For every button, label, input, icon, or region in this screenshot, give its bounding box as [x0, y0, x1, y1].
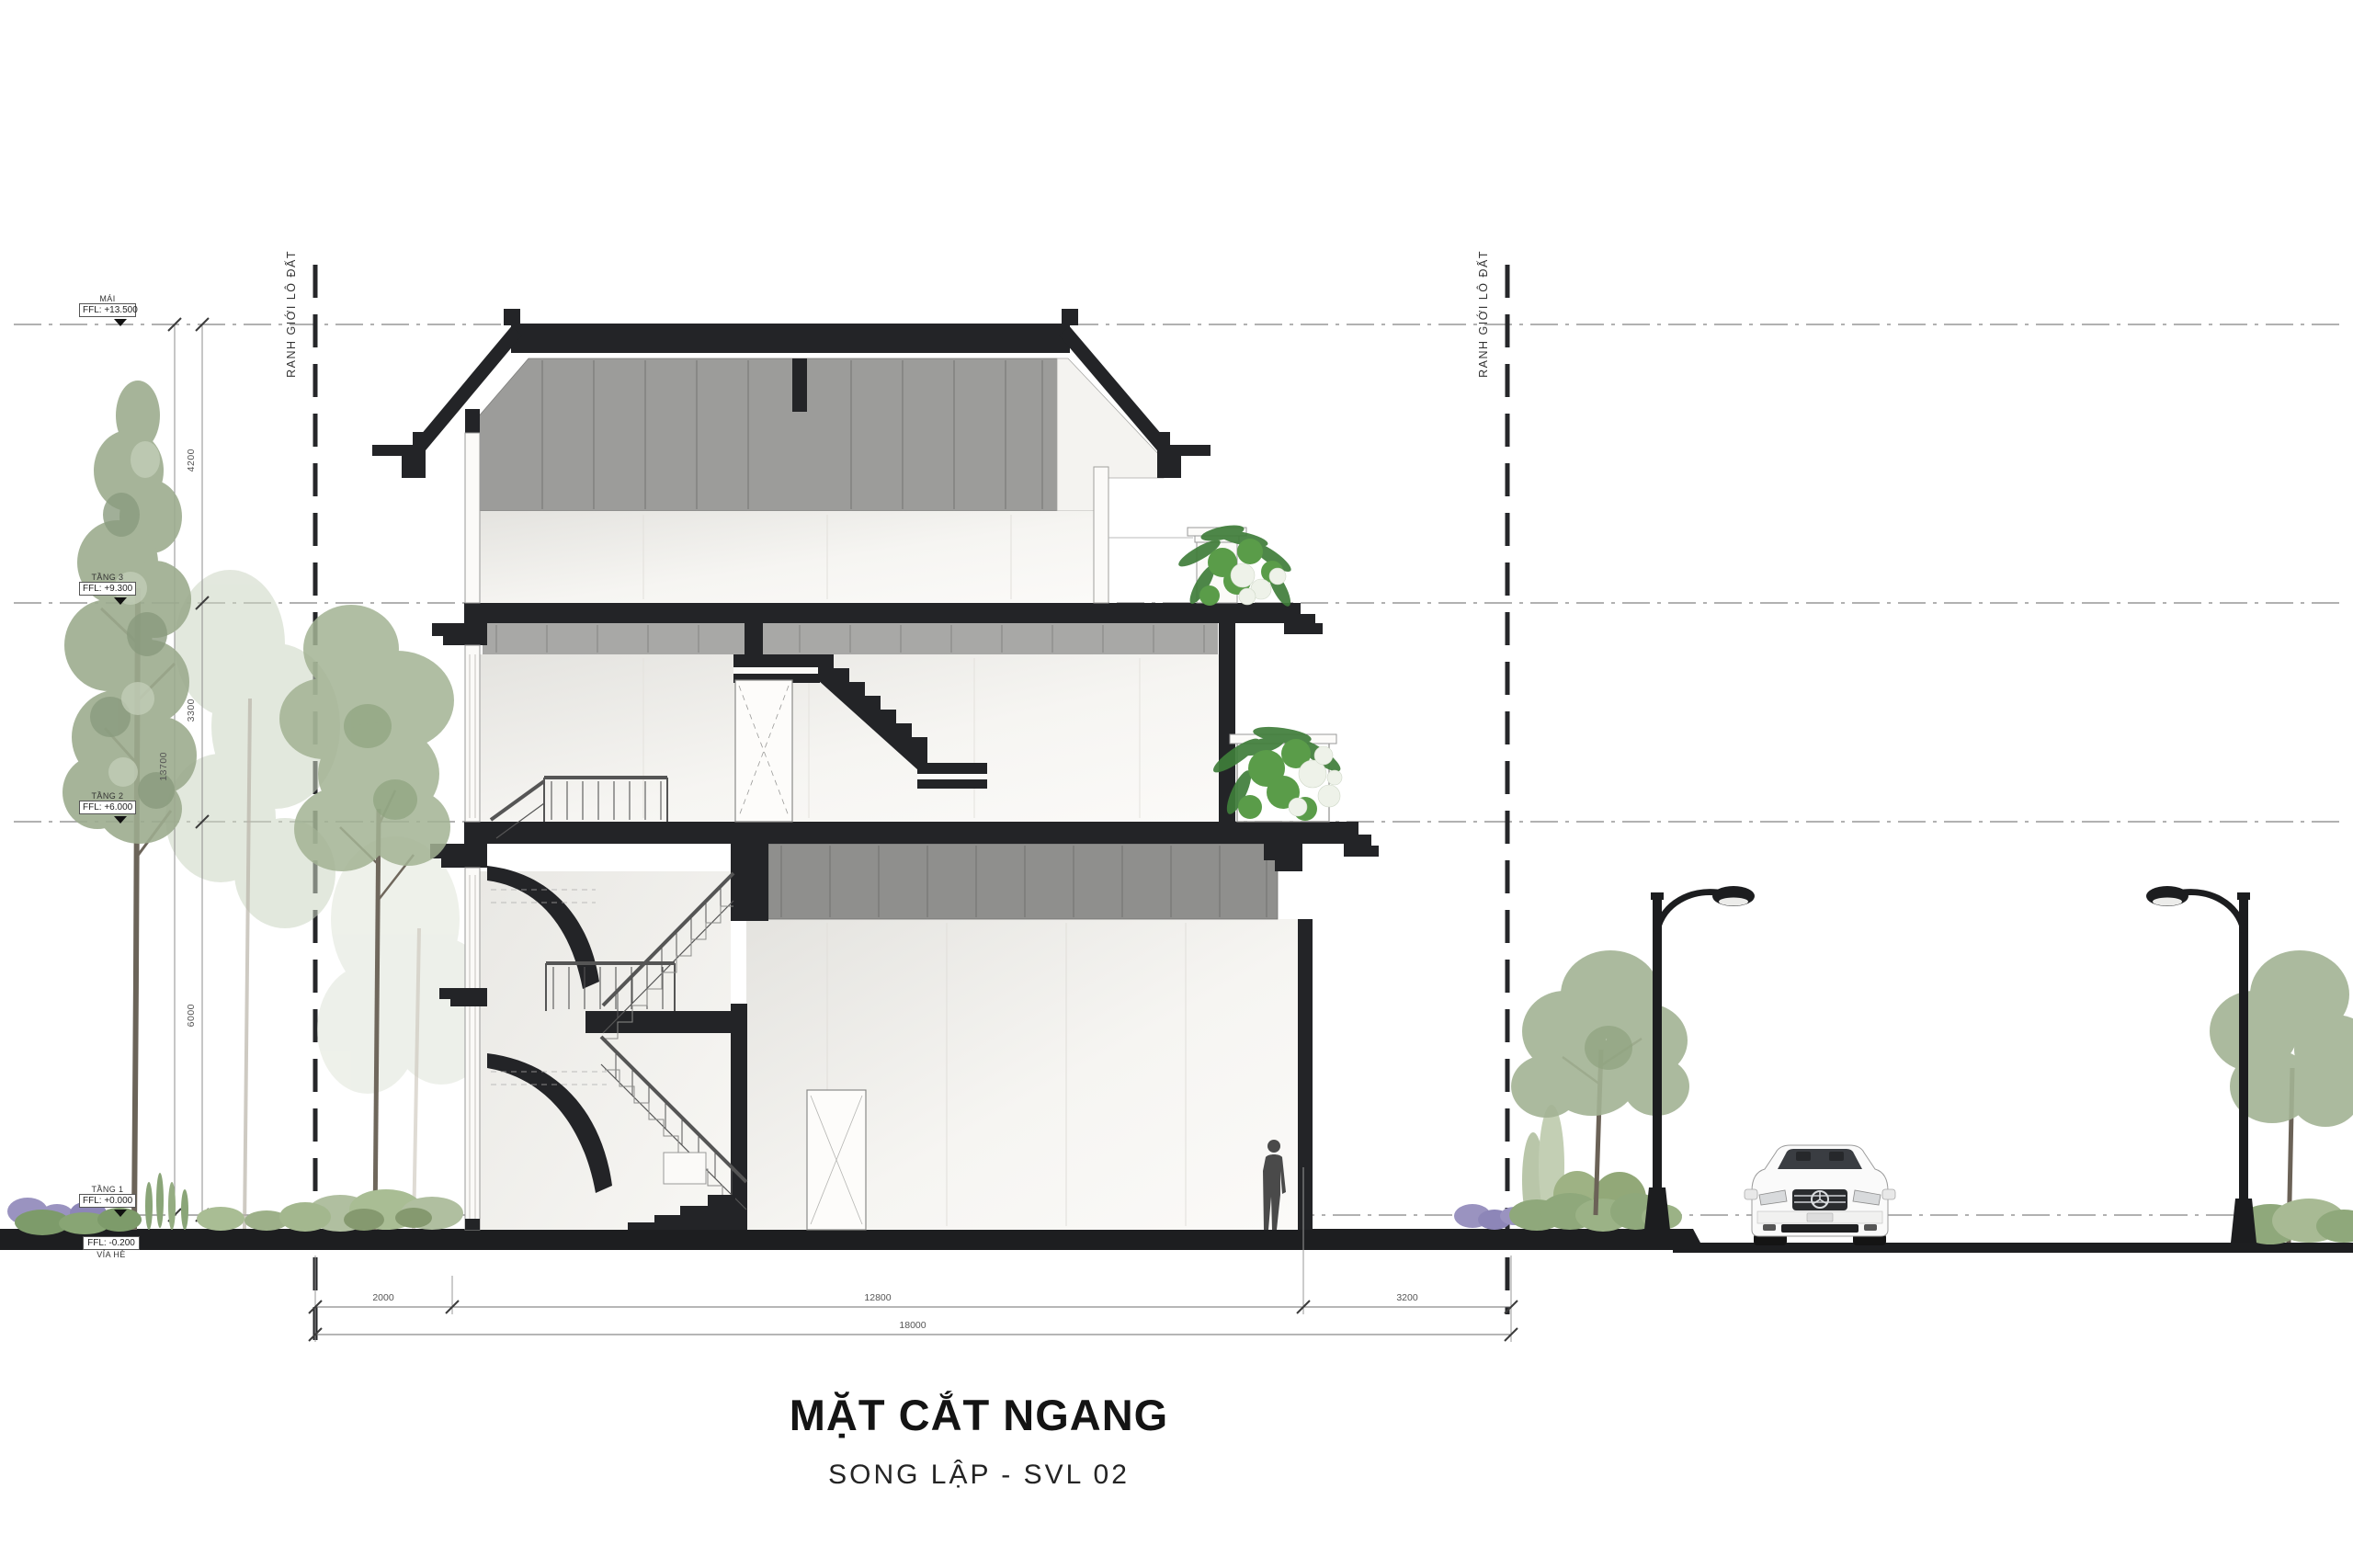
section-drawing: [0, 0, 2353, 1568]
car: [1745, 1145, 1895, 1245]
groundcover-left: [7, 1173, 463, 1235]
dim-floor3-height: 4200: [186, 449, 197, 472]
gutter-right: [1157, 432, 1211, 478]
level-marker-roof: [114, 319, 127, 326]
lot-boundary-label-left: RANH GIỚI LÔ ĐẤT: [285, 250, 298, 378]
attic-space: [472, 358, 1057, 511]
dim-setback-left: 2000: [342, 1292, 425, 1303]
lot-boundary-label-right: RANH GIỚI LÔ ĐẤT: [1477, 250, 1490, 378]
stair-mid-landing: [585, 1011, 733, 1033]
level-label-floor2: TẦNG 2 FFL: +6.000: [79, 791, 136, 814]
level-marker-floor1: [114, 1210, 127, 1217]
gutter-left: [372, 432, 426, 478]
level-ffl: FFL: +9.300: [79, 582, 136, 596]
level-label-roof: MÁI FFL: +13.500: [79, 294, 136, 317]
level-name: MÁI: [79, 294, 136, 303]
dim-building-width: 12800: [836, 1292, 919, 1303]
level-name: TẦNG 2: [79, 791, 136, 801]
level-name: TẦNG 1: [79, 1185, 136, 1194]
level-ffl: FFL: +13.500: [79, 303, 136, 317]
level-ffl: FFL: -0.200: [83, 1236, 140, 1250]
level-marker-floor2: [114, 816, 127, 824]
level-name: VỈA HÈ: [83, 1250, 140, 1259]
dim-floor2-height: 3300: [186, 699, 197, 722]
street-lamp-2: [2146, 886, 2256, 1243]
drawing-subtitle: SONG LẬP - SVL 02: [642, 1460, 1316, 1491]
dim-setback-right: 3200: [1366, 1292, 1449, 1303]
floor3-slab: [464, 603, 1284, 623]
stair-wall-upper: [731, 844, 768, 921]
level-ffl: FFL: +0.000: [79, 1194, 136, 1208]
floor3-slab-cornice: [1284, 603, 1323, 634]
level-ffl: FFL: +6.000: [79, 801, 136, 814]
floor3-interior: [480, 511, 1094, 603]
street-lamp-1: [1644, 886, 1755, 1230]
level-marker-floor3: [114, 597, 127, 605]
section-sheet: MÁI FFL: +13.500 TẦNG 3 FFL: +9.300 TẦNG…: [0, 0, 2353, 1568]
building-section: [372, 309, 1379, 1230]
level-label-sidewalk: FFL: -0.200 VỈA HÈ: [83, 1236, 140, 1259]
tree-far-right: [2210, 950, 2353, 1244]
drawing-title: MẶT CẮT NGANG: [642, 1390, 1316, 1440]
dim-lot-width: 18000: [871, 1320, 954, 1331]
level-label-floor1: TẦNG 1 FFL: +0.000: [79, 1185, 136, 1208]
floor2-slab-cornice: [1344, 822, 1379, 857]
dim-overall-height: 13700: [158, 752, 169, 781]
terrace3-post: [1094, 467, 1108, 603]
ground-right-wall: [1298, 919, 1313, 1230]
planter-floor3: [1176, 522, 1295, 609]
floor2-slab: [464, 822, 1344, 844]
door-ground: [807, 1090, 866, 1230]
roof: [504, 309, 1078, 353]
ground-band: [0, 1229, 2353, 1253]
door-floor2: [735, 680, 792, 822]
dim-floor1-height: 6000: [186, 1004, 197, 1027]
level-label-floor3: TẦNG 3 FFL: +9.300: [79, 573, 136, 596]
lower-roof-band: [768, 844, 1278, 919]
level-name: TẦNG 3: [79, 573, 136, 582]
